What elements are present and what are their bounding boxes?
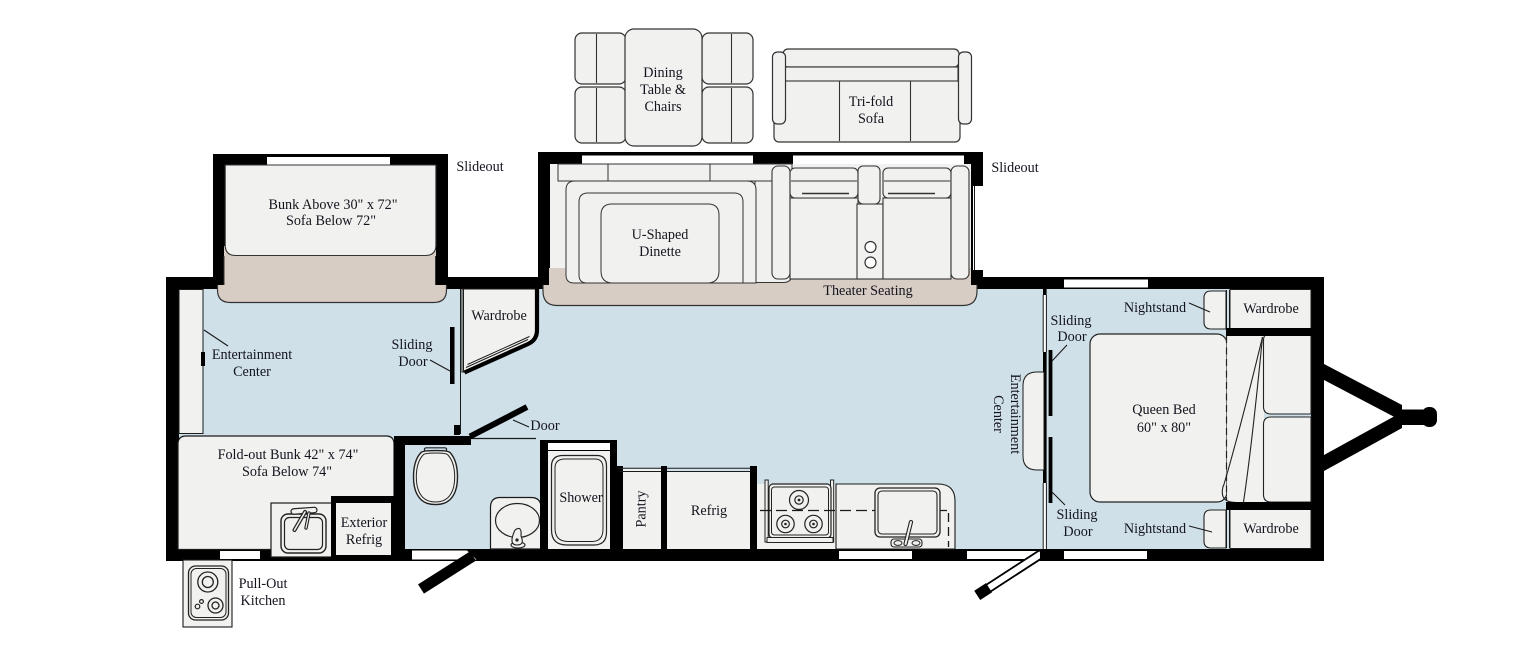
svg-text:Sliding: Sliding (392, 337, 433, 353)
svg-text:Sofa Below 72": Sofa Below 72" (286, 213, 376, 229)
svg-text:Door: Door (1063, 524, 1092, 540)
svg-text:60" x 80": 60" x 80" (1137, 420, 1191, 436)
svg-text:Entertainment: Entertainment (212, 347, 292, 363)
svg-text:Sliding: Sliding (1057, 507, 1098, 523)
svg-text:Slideout: Slideout (456, 159, 503, 175)
svg-text:Dining: Dining (643, 65, 682, 81)
svg-text:Pull-Out: Pull-Out (239, 576, 288, 592)
svg-text:Door: Door (398, 354, 427, 370)
svg-text:Wardrobe: Wardrobe (1243, 301, 1299, 317)
svg-text:Door: Door (530, 418, 559, 434)
svg-text:Kitchen: Kitchen (241, 593, 286, 609)
svg-text:Table &: Table & (640, 82, 686, 98)
svg-text:Dinette: Dinette (639, 244, 681, 260)
svg-text:Sliding: Sliding (1051, 313, 1092, 329)
svg-text:Exterior: Exterior (341, 515, 388, 531)
svg-text:Theater Seating: Theater Seating (823, 283, 912, 299)
svg-text:Wardrobe: Wardrobe (471, 308, 527, 324)
svg-text:Fold-out Bunk 42" x 74": Fold-out Bunk 42" x 74" (218, 447, 359, 463)
svg-text:Nightstand: Nightstand (1124, 521, 1186, 537)
svg-text:Refrig: Refrig (346, 532, 382, 548)
svg-text:Sofa: Sofa (858, 111, 885, 127)
svg-text:Center: Center (233, 364, 271, 380)
svg-text:Nightstand: Nightstand (1124, 300, 1186, 316)
svg-text:Pantry: Pantry (634, 490, 650, 528)
svg-text:Queen Bed: Queen Bed (1132, 402, 1195, 418)
svg-text:Sofa Below 74": Sofa Below 74" (242, 464, 332, 480)
svg-text:Center: Center (990, 395, 1006, 433)
svg-text:Door: Door (1057, 329, 1086, 345)
svg-text:Bunk Above 30" x 72": Bunk Above 30" x 72" (268, 197, 397, 213)
svg-text:Slideout: Slideout (991, 160, 1038, 176)
svg-text:Chairs: Chairs (644, 99, 682, 115)
svg-text:Tri-fold: Tri-fold (849, 94, 893, 110)
svg-text:Refrig: Refrig (691, 503, 727, 519)
svg-text:Shower: Shower (559, 490, 603, 506)
svg-text:U-Shaped: U-Shaped (632, 227, 689, 243)
svg-text:Entertainment: Entertainment (1007, 374, 1023, 454)
svg-text:Wardrobe: Wardrobe (1243, 521, 1299, 537)
